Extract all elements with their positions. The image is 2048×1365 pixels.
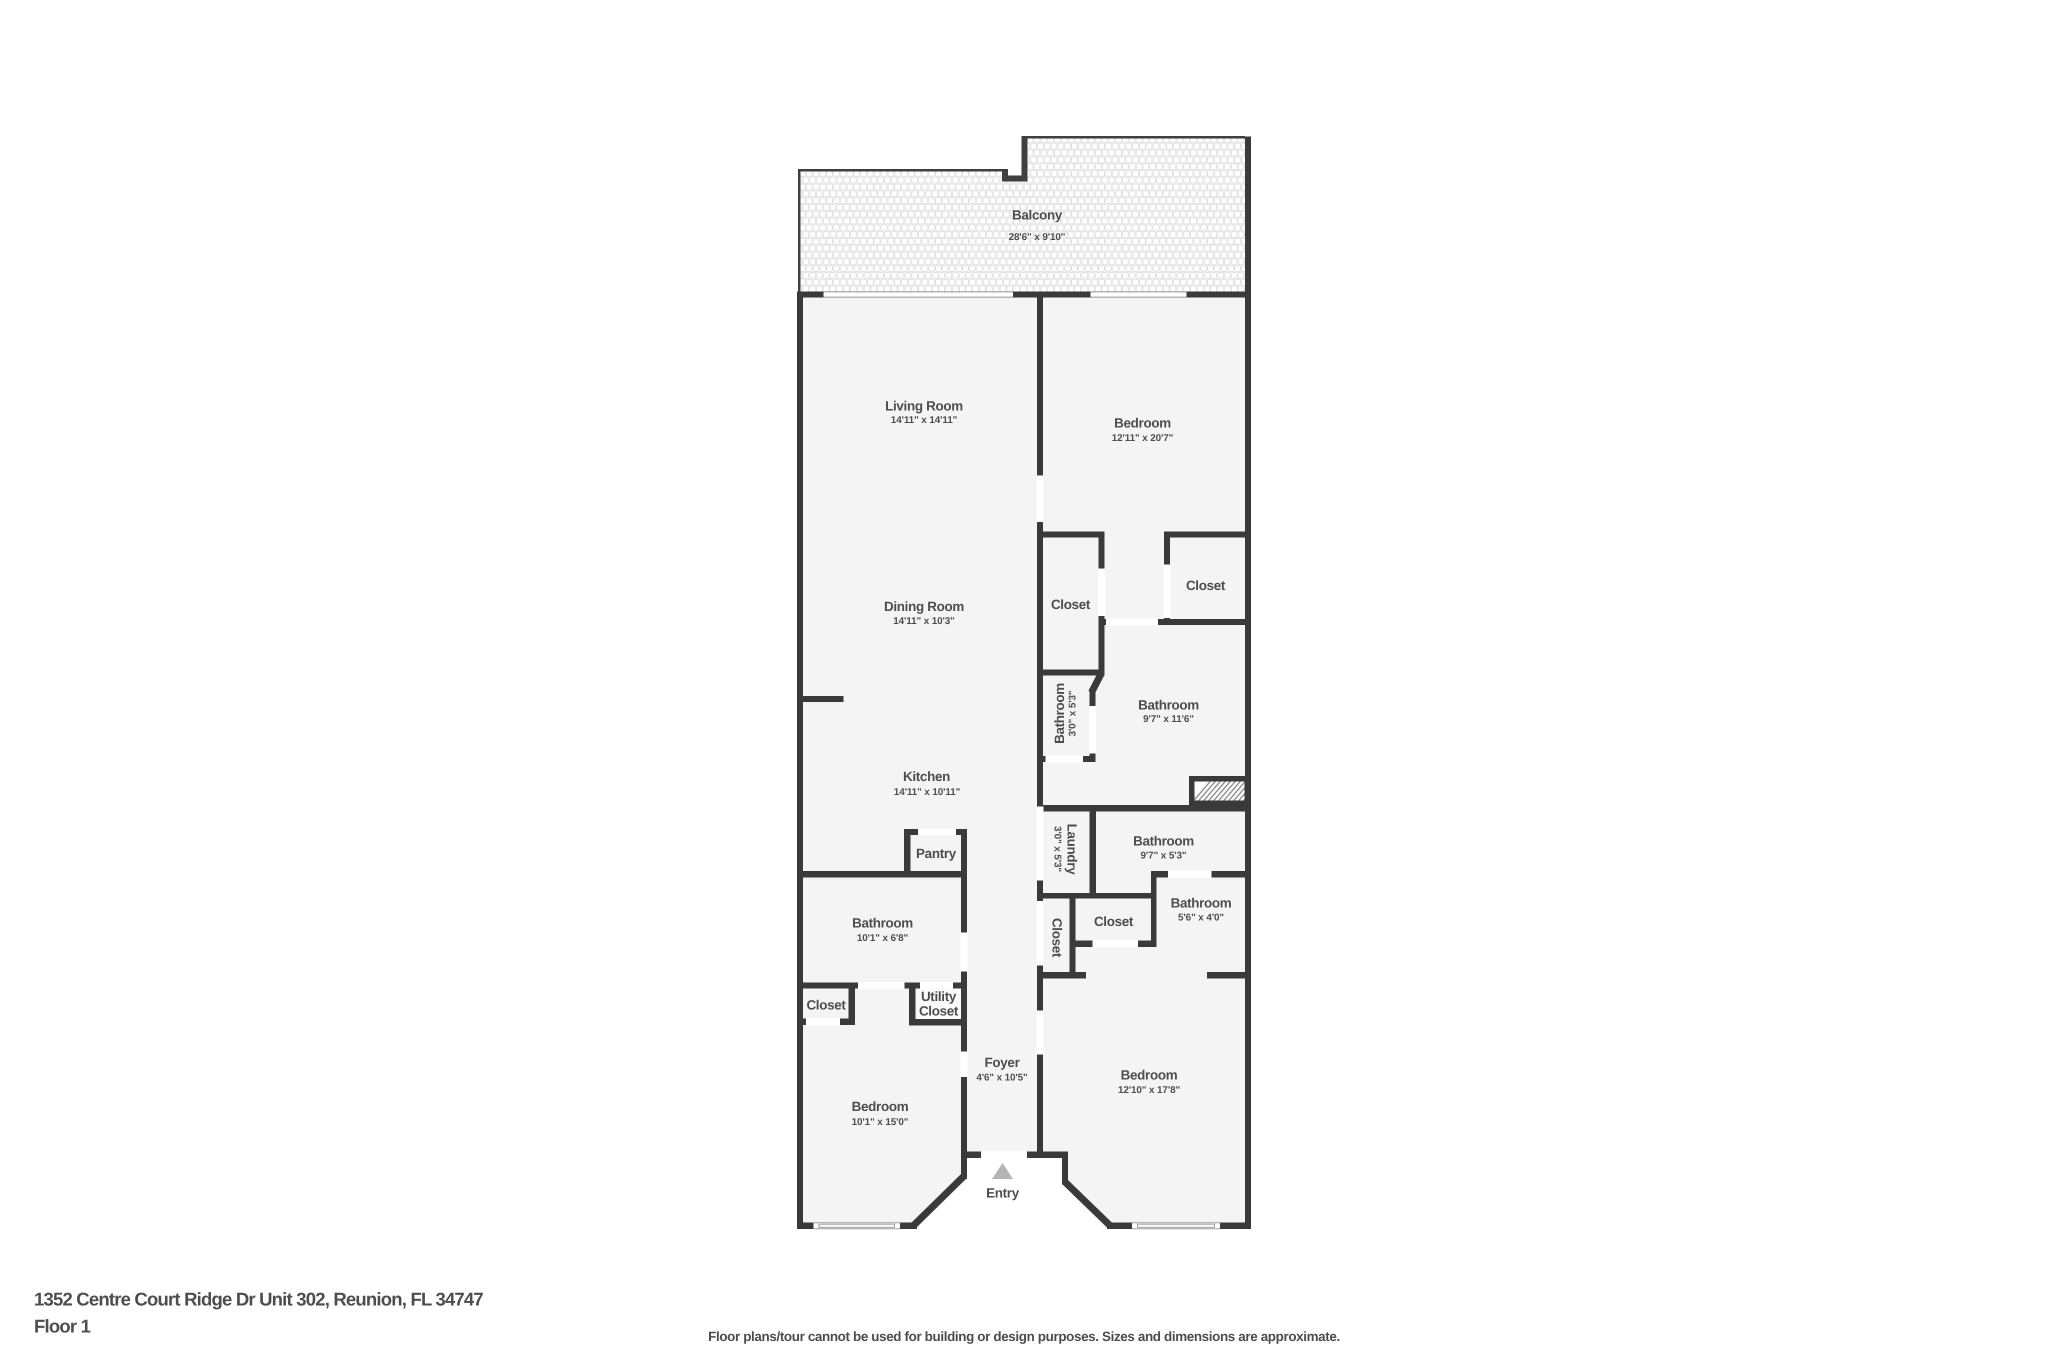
svg-text:Closet: Closet (806, 998, 846, 1013)
svg-text:Living Room: Living Room (885, 399, 963, 414)
svg-text:1352 Centre Court Ridge Dr Uni: 1352 Centre Court Ridge Dr Unit 302, Reu… (34, 1289, 483, 1310)
svg-text:3'0" x 5'3": 3'0" x 5'3" (1052, 826, 1063, 872)
svg-text:12'11" x 20'7": 12'11" x 20'7" (1112, 433, 1174, 444)
svg-text:Closet: Closet (919, 1004, 959, 1019)
svg-text:Kitchen: Kitchen (903, 769, 950, 784)
svg-text:Balcony: Balcony (1012, 208, 1063, 223)
svg-text:9'7" x 11'6": 9'7" x 11'6" (1143, 714, 1194, 725)
svg-text:Utility: Utility (921, 989, 957, 1004)
svg-text:Bathroom: Bathroom (1138, 698, 1199, 713)
svg-text:10'1" x 6'8": 10'1" x 6'8" (857, 933, 909, 944)
svg-text:5'6" x 4'0": 5'6" x 4'0" (1178, 913, 1224, 924)
svg-text:14'11" x 10'11": 14'11" x 10'11" (894, 787, 961, 798)
svg-text:Closet: Closet (1186, 578, 1226, 593)
svg-text:10'1" x 15'0": 10'1" x 15'0" (852, 1117, 909, 1128)
svg-text:9'7" x 5'3": 9'7" x 5'3" (1141, 851, 1187, 862)
svg-text:Bedroom: Bedroom (1114, 416, 1171, 431)
svg-text:4'6" x 10'5": 4'6" x 10'5" (976, 1073, 1028, 1084)
svg-text:Floor plans/tour cannot be use: Floor plans/tour cannot be used for buil… (708, 1329, 1340, 1344)
svg-text:Bathroom: Bathroom (852, 916, 913, 931)
svg-text:Bedroom: Bedroom (852, 1099, 909, 1114)
svg-text:14'11" x 14'11": 14'11" x 14'11" (891, 415, 958, 426)
svg-text:Closet: Closet (1050, 918, 1065, 958)
svg-text:Bedroom: Bedroom (1121, 1068, 1178, 1083)
svg-text:Foyer: Foyer (985, 1055, 1021, 1070)
svg-text:12'10" x 17'8": 12'10" x 17'8" (1118, 1085, 1181, 1096)
svg-text:Dining Room: Dining Room (884, 599, 964, 614)
svg-text:Bathroom: Bathroom (1133, 834, 1194, 849)
svg-text:28'6" x 9'10": 28'6" x 9'10" (1009, 232, 1066, 243)
svg-text:Laundry: Laundry (1065, 824, 1080, 876)
svg-text:Pantry: Pantry (916, 846, 957, 861)
svg-text:Closet: Closet (1051, 597, 1091, 612)
svg-text:3'0" x 5'3": 3'0" x 5'3" (1068, 690, 1079, 736)
svg-text:Floor 1: Floor 1 (34, 1316, 91, 1337)
svg-text:Closet: Closet (1094, 914, 1134, 929)
svg-text:14'11" x 10'3": 14'11" x 10'3" (893, 616, 955, 627)
svg-text:Bathroom: Bathroom (1052, 683, 1067, 744)
svg-text:Entry: Entry (986, 1186, 1020, 1201)
svg-text:Bathroom: Bathroom (1171, 896, 1232, 911)
